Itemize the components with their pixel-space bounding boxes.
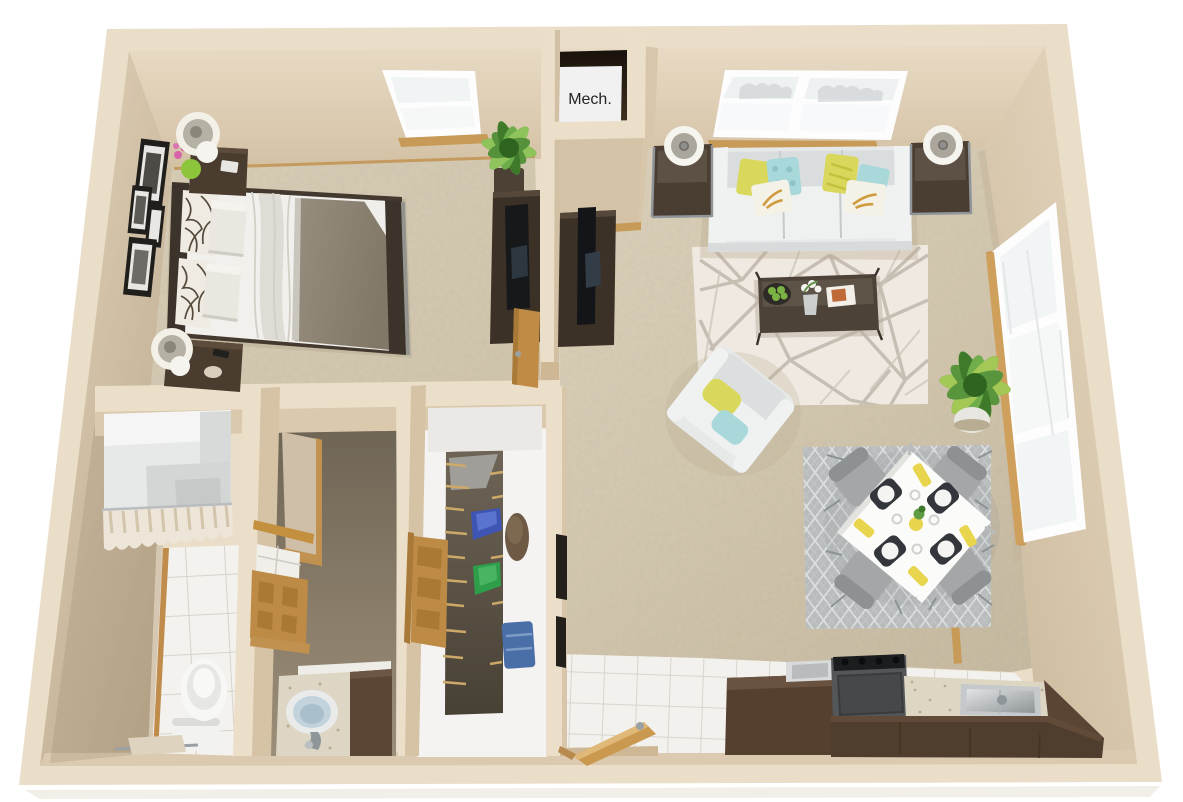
svg-text:Mech.: Mech.: [568, 91, 612, 108]
